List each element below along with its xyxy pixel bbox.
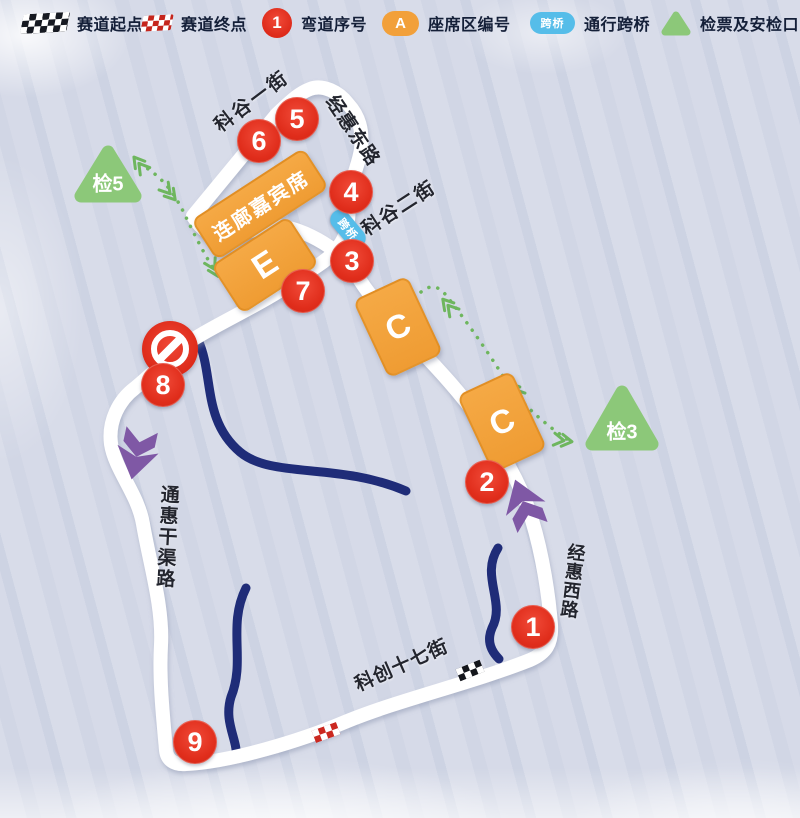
curve-marker-8: 8 [141,363,185,407]
chevron-arrow-icon [438,295,459,317]
river-southeast [490,548,499,659]
curve-marker-2: 2 [465,460,509,504]
checkpoint-5-label: 检5 [92,168,123,197]
chevron-arrow-icon [553,433,572,447]
chevron-arrow-icon [159,182,180,204]
river-northwest [198,340,406,491]
curve-marker-9: 9 [173,720,217,764]
curve-marker-6: 6 [237,119,281,163]
curve-marker-3: 3 [330,239,374,283]
curve-marker-5: 5 [275,97,319,141]
checkpoint-3-label: 检3 [606,416,637,445]
curve-marker-1: 1 [511,605,555,649]
street-tonghui-canal: 通惠干渠路 [150,484,182,590]
curve-marker-4: 4 [329,170,373,214]
river-south [229,588,246,759]
race-course-map-page: 赛道起点 赛道终点 1 弯道序号 A 座席区编号 跨桥 通行跨桥 检票及安检口 [0,0,800,818]
course-map [0,0,800,818]
rivers [198,340,499,759]
curve-marker-7: 7 [281,269,325,313]
chevron-arrow-icon [129,153,150,175]
